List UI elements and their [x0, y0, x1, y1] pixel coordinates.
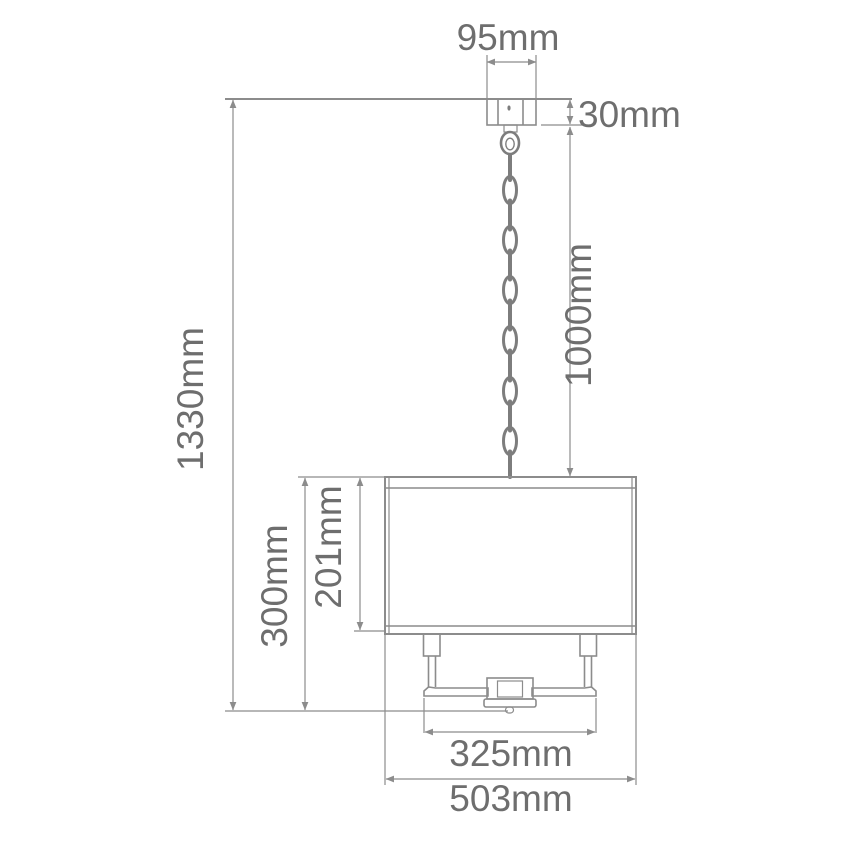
- dim-canopy-width: 95mm: [457, 17, 560, 98]
- chain-loop: [501, 125, 519, 154]
- left-arm: [424, 687, 488, 696]
- dim-label-canopy-height: 30mm: [578, 94, 681, 135]
- hub-plate: [484, 699, 536, 707]
- diagram-canvas: 95mm 30mm 1000mm 1330mm 300mm 201mm 325m…: [0, 0, 868, 868]
- left-candle-sleeve: [424, 634, 441, 656]
- dim-label-shade-width: 503mm: [449, 778, 572, 819]
- dim-label-fixture-height: 300mm: [254, 524, 295, 647]
- dim-shade-height: 201mm: [308, 478, 385, 631]
- dim-canopy-height: 30mm: [541, 94, 681, 135]
- dim-label-shade-height: 201mm: [308, 485, 349, 608]
- pendant-light-diagram: 95mm 30mm 1000mm 1330mm 300mm 201mm 325m…: [0, 0, 868, 868]
- right-candle-sleeve: [580, 634, 597, 656]
- dim-label-chain-length: 1000mm: [558, 243, 599, 387]
- candle-frame: [424, 634, 597, 713]
- lamp-shade: [385, 477, 636, 634]
- right-arm: [532, 687, 596, 696]
- dim-chain-length: 1000mm: [558, 127, 599, 476]
- canopy: [487, 99, 536, 125]
- canopy-screw: [507, 105, 510, 110]
- dim-label-frame-width: 325mm: [449, 733, 572, 774]
- dim-total-height: 1330mm: [170, 100, 508, 711]
- hanging-chain: [504, 155, 517, 477]
- dim-label-total-height: 1330mm: [170, 327, 211, 471]
- finial: [506, 707, 514, 713]
- center-hub: [484, 678, 536, 713]
- dim-label-canopy-width: 95mm: [457, 17, 560, 58]
- dim-frame-width: 325mm: [424, 698, 596, 774]
- dim-shade-width: 503mm: [385, 634, 636, 819]
